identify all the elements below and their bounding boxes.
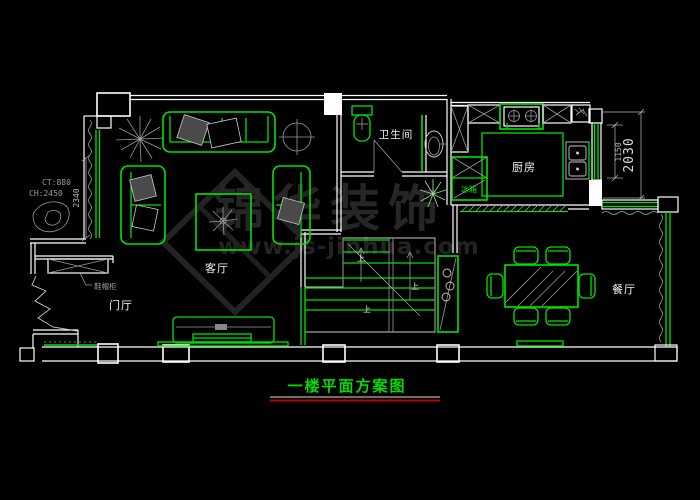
watermark-brand: 锦华装饰 (214, 180, 446, 238)
wall-pier (589, 180, 602, 206)
stairs-up-label: 上 (357, 254, 365, 263)
dim-ch: CH:2450 (29, 189, 63, 198)
bathroom-label: 卫生间 (379, 128, 414, 141)
shoe-cabinet-label: 鞋帽柜 (94, 281, 117, 291)
floor-plan-svg: 锦华装饰 www.js-jinhua.com (0, 0, 700, 500)
living-room-label: 客厅 (205, 261, 229, 275)
stairs-up-label: 上 (363, 305, 371, 314)
foyer-label: 门厅 (109, 298, 133, 312)
tv-icon (215, 324, 227, 330)
pillow-icon (130, 175, 157, 202)
dining-room-label: 餐厅 (612, 282, 636, 296)
dim-2030: 2030 (622, 137, 637, 172)
fridge-label: 冰箱 (461, 184, 477, 194)
pillow-icon (132, 205, 158, 231)
wall-column (324, 93, 342, 115)
dim-2340: 2340 (72, 188, 81, 207)
page-title: 一楼平面方案图 (287, 377, 406, 395)
stairs-up-label: 上 (411, 282, 419, 291)
kitchen-label: 厨房 (512, 161, 536, 174)
dim-ct: CT:880 (42, 178, 71, 187)
cad-floorplan-screenshot: 锦华装饰 www.js-jinhua.com (0, 0, 700, 500)
